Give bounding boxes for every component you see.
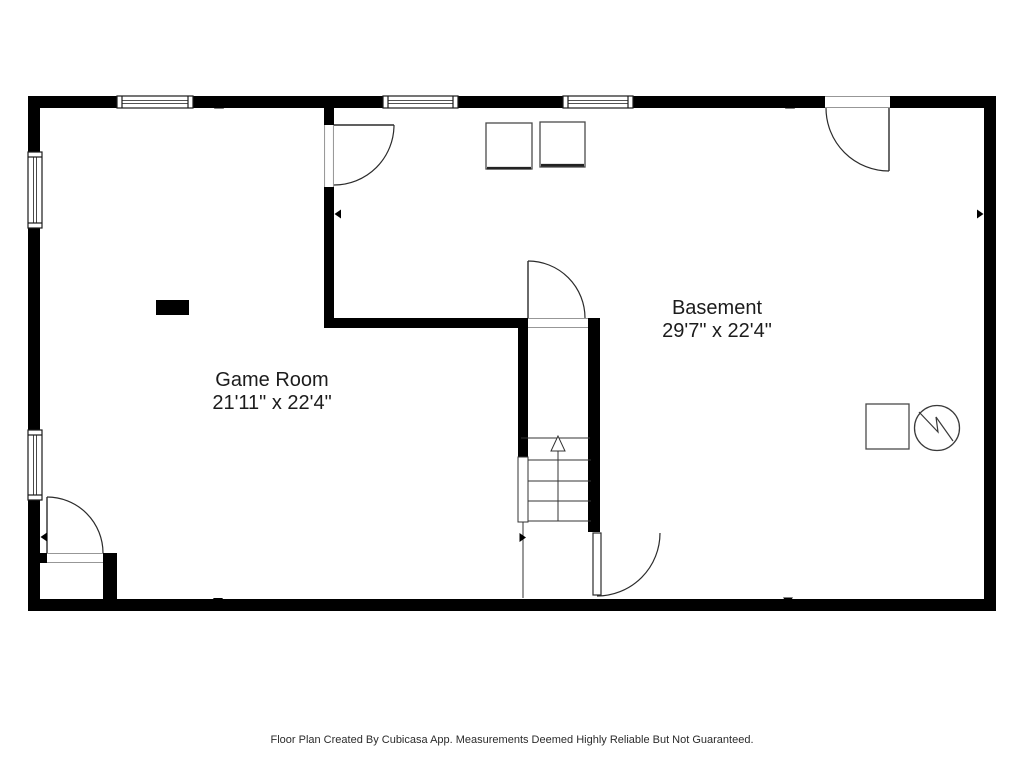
- door-stairwell-top-threshold: [528, 318, 588, 328]
- basement-label-block: Basement 29'7" x 22'4": [662, 297, 772, 343]
- door-top-right: [825, 96, 890, 171]
- door-closet-threshold: [47, 553, 103, 563]
- basement-dimensions: 29'7" x 22'4": [662, 320, 772, 343]
- game-room-label-block: Game Room 21'11" x 22'4": [212, 369, 331, 415]
- window-top-2: [383, 96, 458, 108]
- appliance-square-2: [540, 122, 585, 167]
- door-stairwell-top: [528, 261, 588, 328]
- door-interior-wall: [324, 125, 394, 187]
- door-closet: [47, 497, 103, 563]
- stair-handrail: [518, 457, 528, 522]
- game-room-name: Game Room: [212, 369, 331, 392]
- window-left-1: [28, 152, 42, 228]
- staircase: [518, 436, 591, 598]
- support-column: [156, 300, 189, 315]
- door-stairwell-bottom: [593, 533, 660, 596]
- measure-marker-left-gameroom: [41, 533, 48, 542]
- measure-marker-right-basement: [977, 210, 984, 219]
- footer-disclaimer: Floor Plan Created By Cubicasa App. Meas…: [270, 734, 753, 746]
- wall-exterior-bottom: [28, 599, 996, 611]
- door-top-right-swing-arc: [826, 108, 889, 171]
- game-room-dimensions: 21'11" x 22'4": [212, 392, 331, 415]
- wall-interior-vertical-lower: [324, 187, 334, 318]
- door-interior-threshold: [324, 125, 334, 187]
- stairwell-wall-left: [518, 318, 528, 457]
- wall-interior-horizontal: [324, 318, 518, 328]
- floor-plan-canvas: [0, 0, 1024, 768]
- floor-plan-page: Game Room 21'11" x 22'4" Basement 29'7" …: [0, 0, 1024, 768]
- door-stairwell-bottom-swing-arc: [597, 533, 660, 596]
- window-top-1: [117, 96, 193, 108]
- water-heater-icon: [915, 406, 960, 451]
- door-interior-swing-arc: [334, 125, 394, 185]
- closet-wall-stub-left: [40, 553, 47, 563]
- window-left-2: [28, 430, 42, 500]
- stairwell-wall-right: [588, 318, 600, 532]
- wall-exterior-right: [984, 96, 996, 611]
- closet-wall-right: [103, 553, 117, 599]
- door-top-right-threshold: [825, 96, 890, 108]
- appliance-square-1: [486, 123, 532, 169]
- utility-box: [866, 404, 909, 449]
- door-closet-swing-arc: [47, 497, 103, 553]
- basement-name: Basement: [662, 297, 772, 320]
- door-stairwell-top-swing-arc: [528, 261, 585, 318]
- measure-markers: [41, 101, 984, 605]
- measure-marker-left-basement: [335, 210, 342, 219]
- window-top-3: [563, 96, 633, 108]
- wall-interior-vertical-upper: [324, 108, 334, 125]
- door-stairwell-bottom-leaf: [593, 533, 601, 595]
